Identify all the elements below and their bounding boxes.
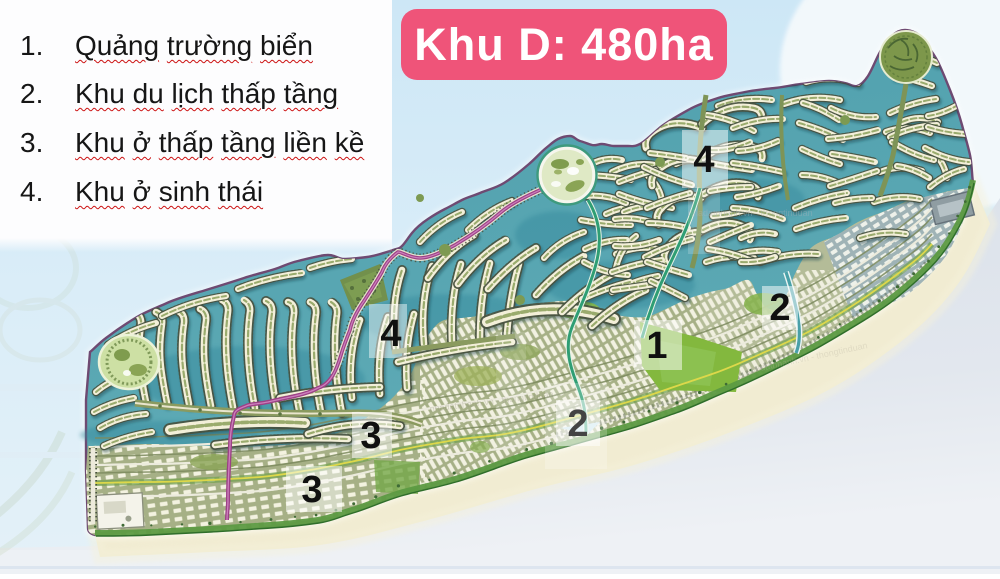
svg-text:1: 1 [646, 325, 667, 367]
svg-text:nhadatnhanh.vn - thongtinduan: nhadatnhanh.vn - thongtinduan [688, 208, 813, 218]
svg-text:3: 3 [301, 469, 322, 511]
svg-text:2: 2 [769, 287, 790, 329]
svg-text:3: 3 [360, 415, 381, 457]
svg-text:4: 4 [380, 313, 401, 355]
svg-text:4: 4 [693, 139, 714, 181]
